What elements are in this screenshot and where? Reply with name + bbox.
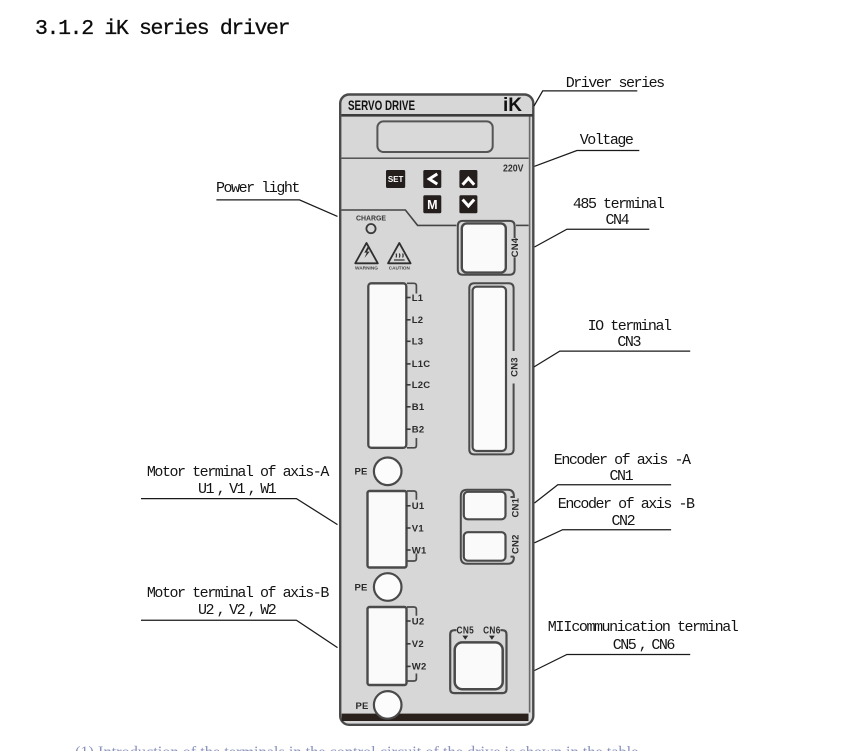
svg-text:L1: L1 bbox=[412, 293, 424, 304]
svg-text:PE: PE bbox=[356, 701, 369, 712]
svg-text:V1: V1 bbox=[412, 523, 425, 534]
svg-text:PE: PE bbox=[355, 467, 368, 478]
svg-text:L3: L3 bbox=[412, 337, 424, 348]
svg-text:CN5: CN5 bbox=[457, 624, 475, 636]
svg-text:W1: W1 bbox=[412, 545, 427, 556]
svg-text:V2: V2 bbox=[412, 639, 424, 650]
svg-text:U2: U2 bbox=[412, 616, 425, 627]
svg-text:CN2: CN2 bbox=[510, 534, 521, 554]
svg-text:CAUTION: CAUTION bbox=[389, 266, 410, 271]
svg-text:L2C: L2C bbox=[412, 380, 431, 391]
svg-text:PE: PE bbox=[355, 582, 368, 593]
svg-text:L1C: L1C bbox=[412, 359, 431, 370]
svg-text:U1: U1 bbox=[412, 501, 425, 512]
svg-text:SET: SET bbox=[388, 175, 404, 184]
svg-text:iK: iK bbox=[503, 95, 522, 116]
svg-text:CHARGE: CHARGE bbox=[356, 214, 386, 223]
svg-text:220V: 220V bbox=[503, 163, 524, 175]
svg-text:L2: L2 bbox=[412, 315, 424, 326]
svg-text:WARNING: WARNING bbox=[355, 266, 379, 271]
svg-text:CN1: CN1 bbox=[510, 497, 521, 517]
svg-text:CN4: CN4 bbox=[510, 237, 521, 257]
svg-text:M: M bbox=[427, 198, 437, 212]
svg-text:CN6: CN6 bbox=[483, 624, 501, 636]
svg-text:CN3: CN3 bbox=[510, 357, 521, 377]
svg-text:SERVO DRIVE: SERVO DRIVE bbox=[348, 97, 415, 113]
svg-text:W2: W2 bbox=[412, 662, 427, 673]
svg-text:B2: B2 bbox=[412, 425, 425, 436]
svg-text:B1: B1 bbox=[412, 402, 425, 413]
